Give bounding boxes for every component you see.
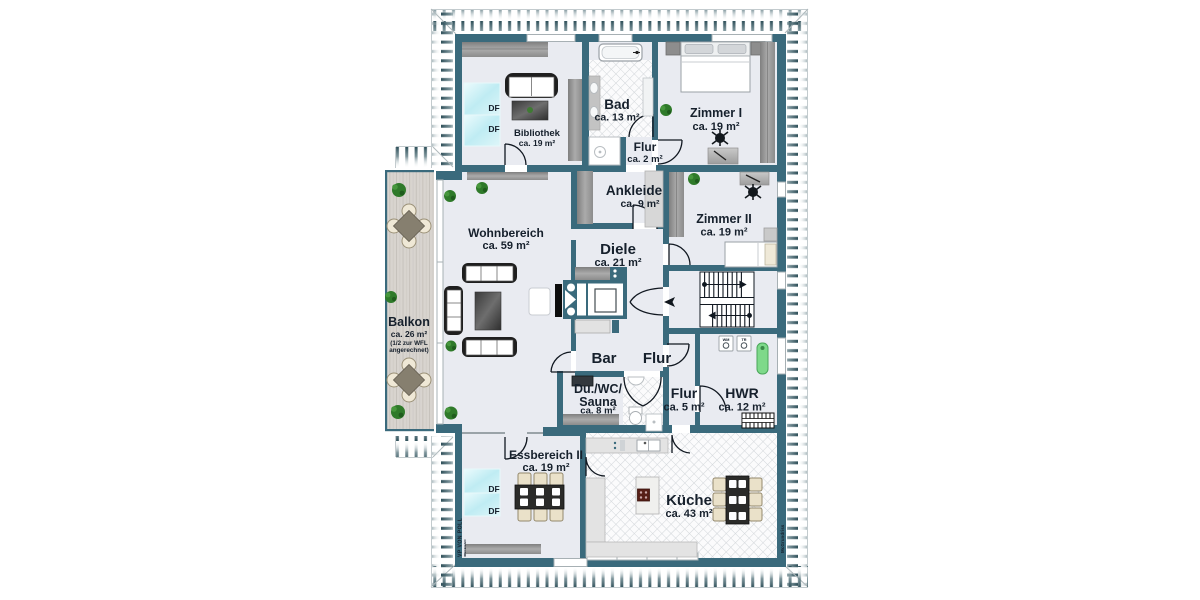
svg-text:ca. 5 m²: ca. 5 m² <box>664 402 705 414</box>
svg-text:DF: DF <box>488 506 499 516</box>
svg-text:Wohnbereich: Wohnbereich <box>468 226 544 240</box>
svg-text:Zimmer I: Zimmer I <box>690 106 742 120</box>
svg-text:IMMOBILIEN: IMMOBILIEN <box>463 539 467 557</box>
svg-text:VP VON POLL: VP VON POLL <box>458 517 464 557</box>
svg-text:WM: WM <box>723 338 730 342</box>
svg-text:Flur: Flur <box>671 385 698 401</box>
svg-text:Essbereich II: Essbereich II <box>509 448 583 462</box>
svg-text:ca. 19 m²: ca. 19 m² <box>522 462 569 474</box>
svg-text:ca. 12 m²: ca. 12 m² <box>718 402 765 414</box>
svg-text:DF: DF <box>488 103 499 113</box>
svg-text:ca. 19 m²: ca. 19 m² <box>692 121 739 133</box>
svg-text:DF: DF <box>488 484 499 494</box>
svg-text:HWR: HWR <box>725 385 758 401</box>
svg-text:ca. 43 m²: ca. 43 m² <box>665 508 712 520</box>
svg-text:ca. 9 m²: ca. 9 m² <box>620 198 660 210</box>
svg-text:ca. 8 m²: ca. 8 m² <box>580 406 615 417</box>
svg-text:McGrundriss: McGrundriss <box>780 524 785 553</box>
svg-text:Diele: Diele <box>600 241 636 258</box>
svg-text:Bar: Bar <box>591 350 616 367</box>
svg-text:TR: TR <box>741 338 746 342</box>
svg-text:Balkon: Balkon <box>388 315 430 329</box>
svg-text:Flur: Flur <box>643 350 671 367</box>
svg-text:ca. 26 m²: ca. 26 m² <box>391 329 428 339</box>
svg-text:angerechnet): angerechnet) <box>389 347 429 354</box>
svg-text:ca. 2 m²: ca. 2 m² <box>627 154 662 165</box>
svg-text:DF: DF <box>488 124 499 134</box>
svg-text:Zimmer II: Zimmer II <box>696 212 752 226</box>
svg-text:Bad: Bad <box>604 97 630 112</box>
svg-text:Flur: Flur <box>634 140 657 154</box>
svg-text:ca. 19 m²: ca. 19 m² <box>519 138 556 148</box>
svg-text:Ankleide: Ankleide <box>606 183 663 198</box>
svg-text:(1/2 zur WFL: (1/2 zur WFL <box>390 340 428 347</box>
svg-text:ca. 59 m²: ca. 59 m² <box>482 240 529 252</box>
svg-text:Küche: Küche <box>666 492 712 509</box>
svg-text:ca. 13 m²: ca. 13 m² <box>595 112 640 124</box>
svg-text:ca. 21 m²: ca. 21 m² <box>594 257 641 269</box>
svg-text:ca. 19 m²: ca. 19 m² <box>700 227 747 239</box>
svg-text:Du./WC/: Du./WC/ <box>574 382 622 396</box>
